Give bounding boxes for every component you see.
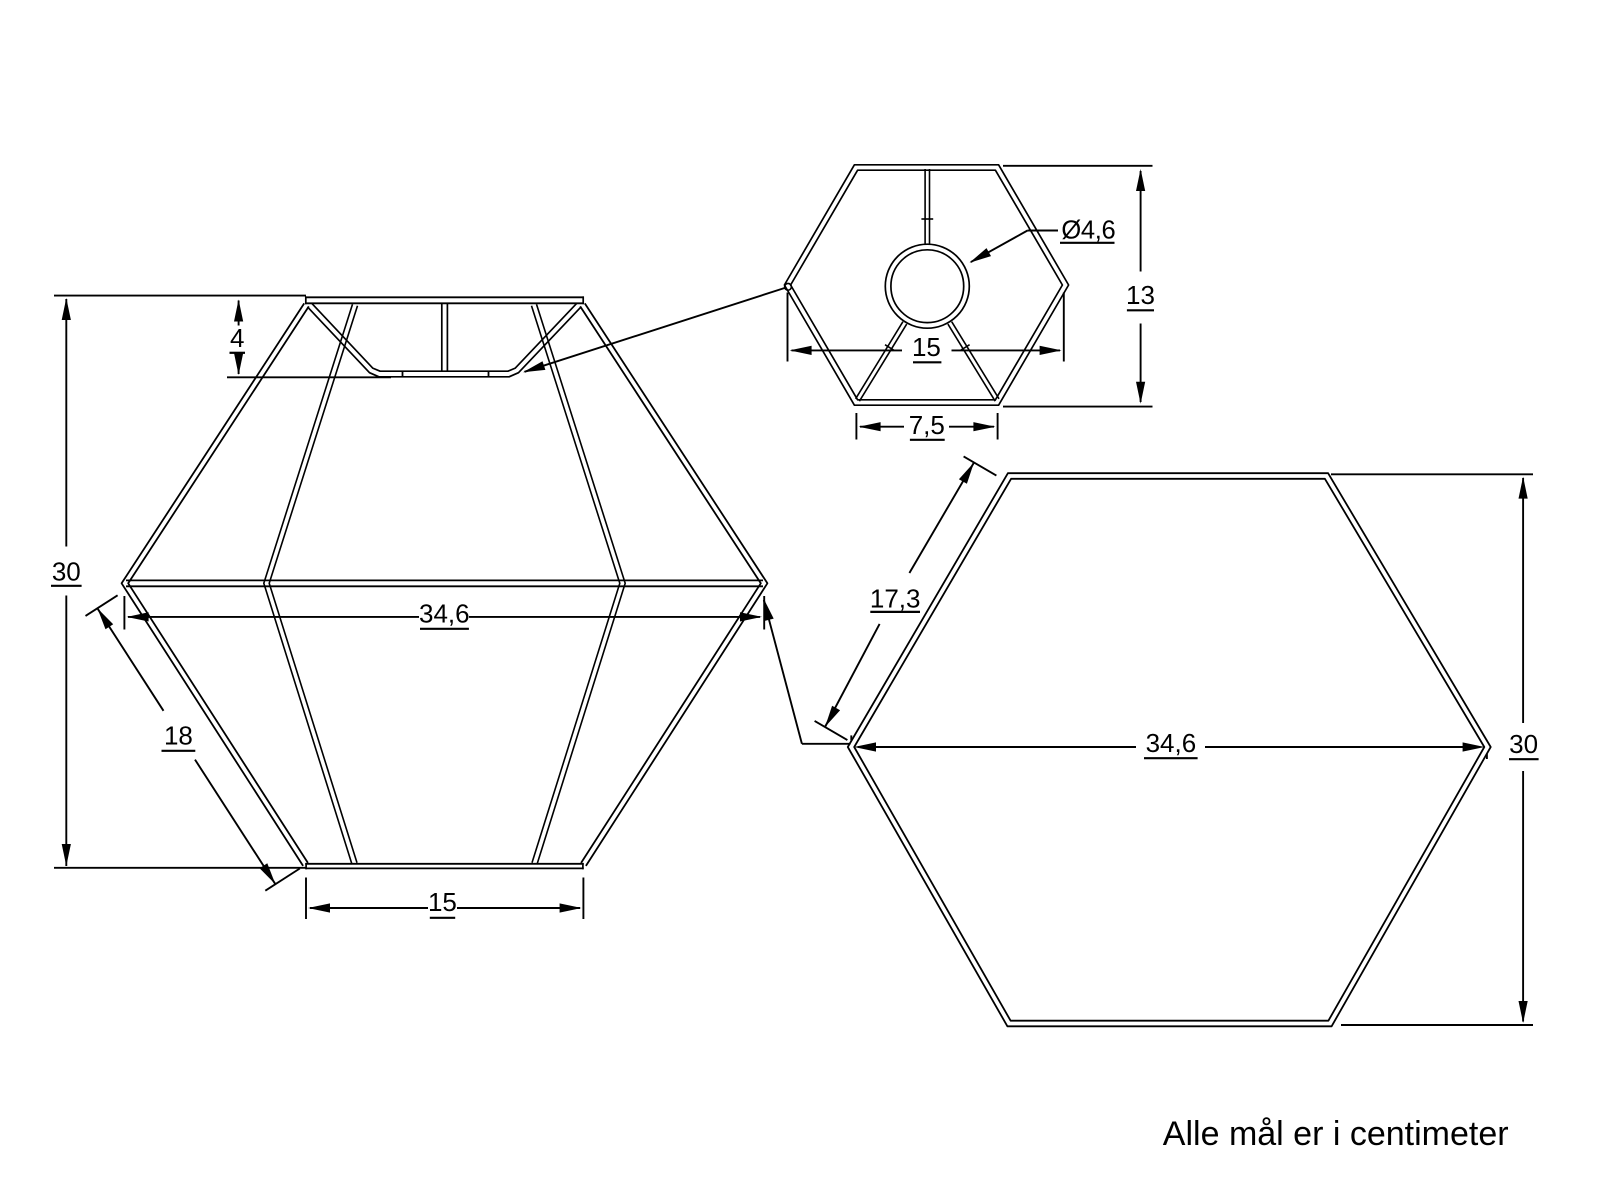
svg-text:17,3: 17,3 <box>870 584 921 614</box>
svg-text:4: 4 <box>230 323 244 353</box>
svg-text:13: 13 <box>1126 280 1155 310</box>
svg-text:7,5: 7,5 <box>909 410 945 440</box>
svg-text:Alle mål er i centimeter: Alle mål er i centimeter <box>1163 1115 1509 1153</box>
svg-text:34,6: 34,6 <box>419 599 470 629</box>
svg-text:34,6: 34,6 <box>1146 728 1197 758</box>
svg-text:30: 30 <box>1509 729 1538 759</box>
svg-text:15: 15 <box>428 887 457 917</box>
svg-text:18: 18 <box>164 721 193 751</box>
svg-text:Ø4,6: Ø4,6 <box>1061 217 1115 245</box>
svg-text:30: 30 <box>52 556 81 586</box>
svg-text:15: 15 <box>912 332 941 362</box>
